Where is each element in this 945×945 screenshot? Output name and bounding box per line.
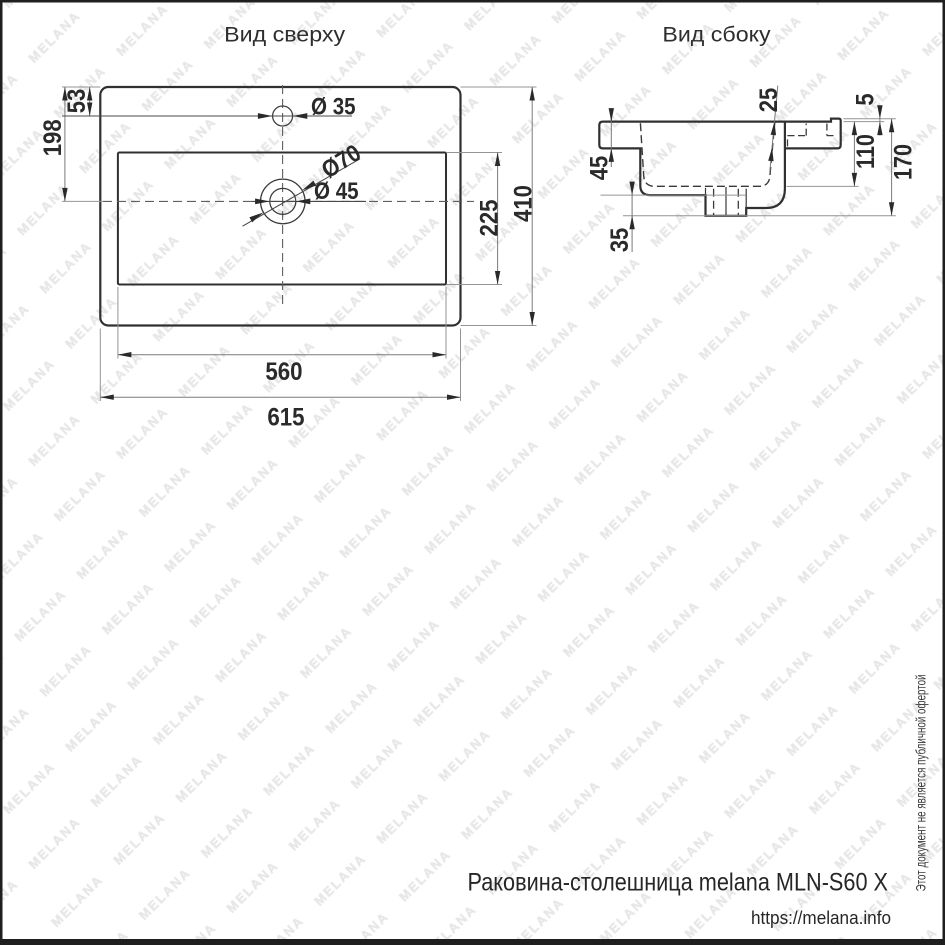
- svg-text:615: 615: [267, 404, 304, 432]
- svg-text:198: 198: [39, 119, 67, 156]
- svg-text:Вид сверху: Вид сверху: [224, 23, 345, 47]
- svg-text:Ø 45: Ø 45: [314, 178, 359, 205]
- svg-text:53: 53: [63, 89, 91, 114]
- svg-text:35: 35: [606, 228, 634, 253]
- svg-text:45: 45: [586, 156, 614, 181]
- svg-text:Ø 35: Ø 35: [311, 94, 356, 121]
- svg-text:https://melana.info: https://melana.info: [751, 907, 891, 928]
- svg-text:25: 25: [755, 88, 783, 113]
- svg-text:Вид сбоку: Вид сбоку: [662, 23, 771, 47]
- svg-text:560: 560: [265, 358, 302, 386]
- svg-text:5: 5: [852, 93, 880, 105]
- svg-text:Раковина-столешница melana MLN: Раковина-столешница melana MLN-S60 X: [468, 869, 889, 897]
- svg-text:110: 110: [852, 134, 880, 169]
- svg-text:410: 410: [510, 185, 538, 222]
- svg-text:170: 170: [890, 144, 918, 180]
- svg-text:Этот документ не является публ: Этот документ не является публичной офер…: [913, 674, 929, 891]
- svg-text:225: 225: [476, 199, 504, 236]
